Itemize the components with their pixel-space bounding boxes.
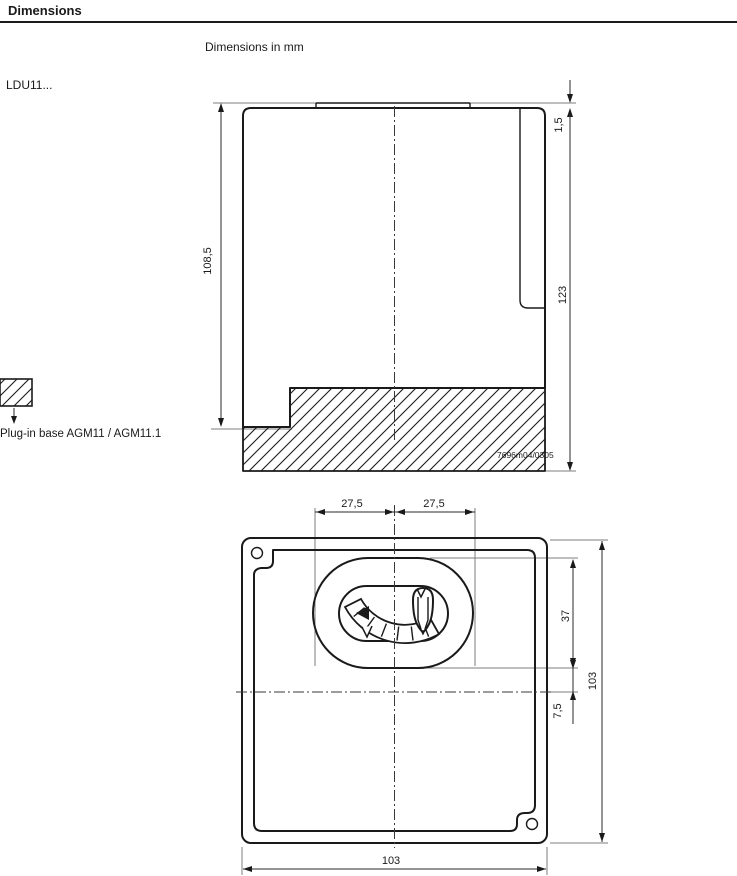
dim-label-center-offset: 7,5 — [552, 703, 564, 718]
dial-outer-bezel — [313, 558, 473, 668]
dim-label-total-height: 103 — [587, 672, 599, 690]
hatch-legend-swatch-icon — [0, 379, 32, 406]
dim-lines-top-step-and-total-height — [567, 80, 573, 471]
dim-label-top-step: 1,5 — [553, 117, 565, 132]
dim-label-total-height: 123 — [557, 286, 569, 304]
plug-in-base-legend-label: Plug-in base AGM11 / AGM11.1 — [0, 428, 161, 440]
side-view-drawing — [0, 80, 576, 471]
units-note: Dimensions in mm — [205, 40, 304, 54]
down-arrow-icon — [11, 408, 17, 424]
dim-label-front-height: 108,5 — [202, 247, 214, 275]
dim-label-right-half-width: 27,5 — [423, 498, 444, 510]
header-rule — [0, 21, 737, 23]
drawing-reference-number: 7696m04/0305 — [497, 450, 554, 460]
screw-hole-bottom-right — [527, 819, 538, 830]
screw-hole-top-left — [252, 548, 263, 559]
dim-lines-total-height — [599, 541, 605, 842]
dim-label-window-height: 37 — [560, 610, 572, 622]
dim-label-total-width: 103 — [382, 855, 400, 867]
model-label: LDU11... — [6, 78, 52, 92]
dim-lines-front-height — [218, 103, 224, 427]
datasheet-dimensions-page: Dimensions Dimensions in mm LDU11... 108… — [0, 0, 737, 876]
page-title: Dimensions — [8, 3, 82, 18]
dim-label-left-half-width: 27,5 — [341, 498, 362, 510]
front-view-drawing — [236, 505, 608, 875]
program-indicator-dial — [313, 558, 473, 668]
